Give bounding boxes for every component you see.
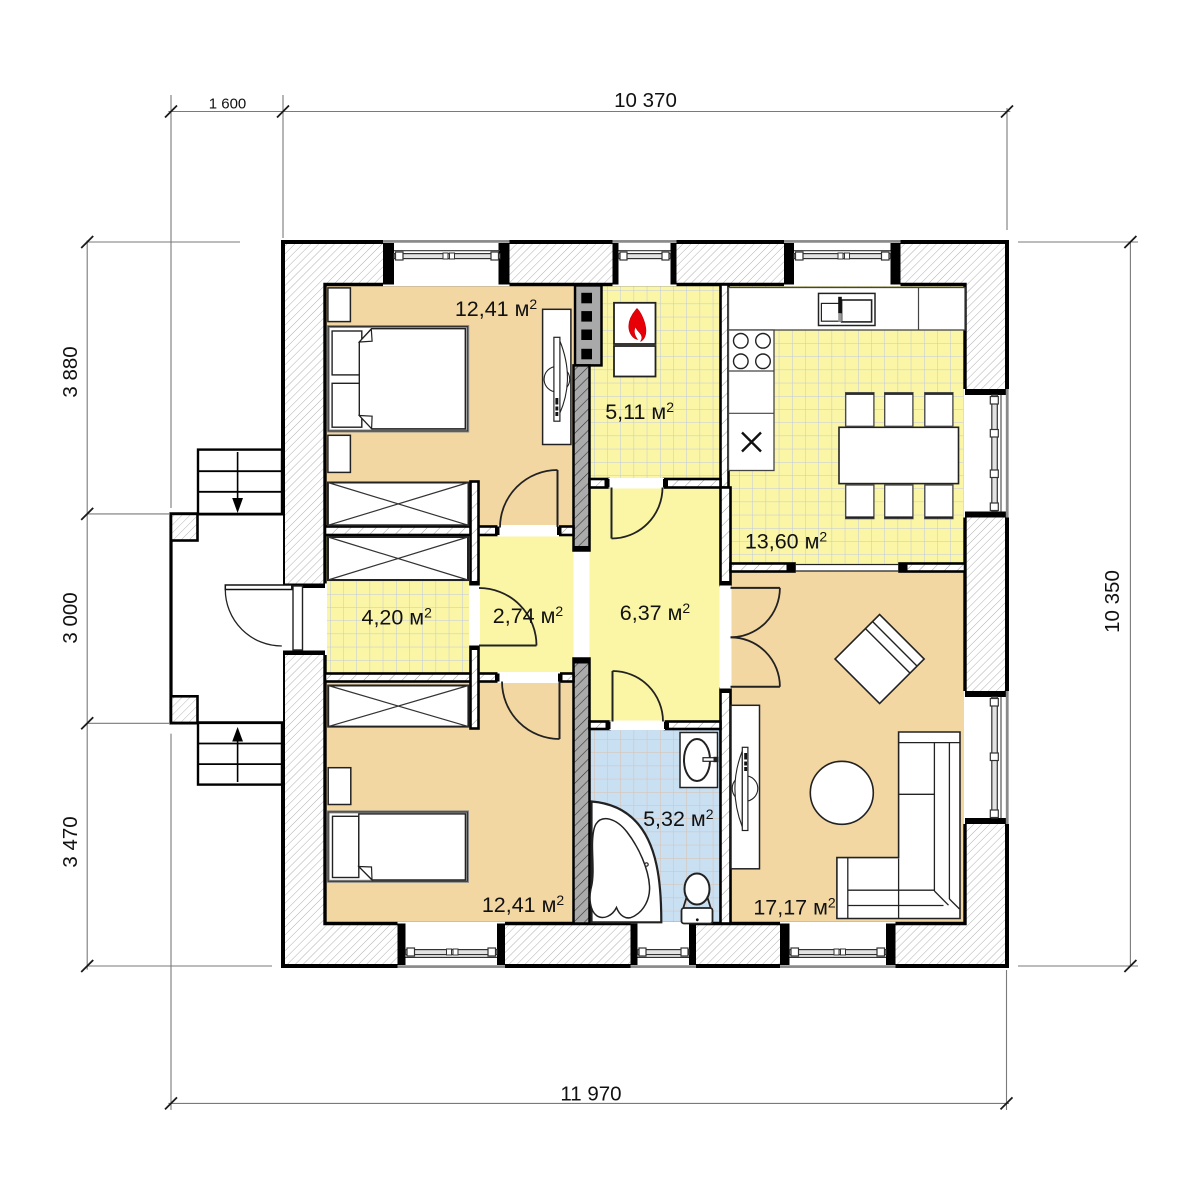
svg-text:12,41 м2: 12,41 м2 bbox=[455, 296, 538, 321]
svg-text:4,20 м2: 4,20 м2 bbox=[361, 605, 432, 630]
svg-text:12,41 м2: 12,41 м2 bbox=[482, 892, 565, 917]
svg-text:3 470: 3 470 bbox=[59, 816, 82, 867]
svg-text:10 370: 10 370 bbox=[614, 89, 677, 112]
svg-text:2,74 м2: 2,74 м2 bbox=[493, 603, 564, 628]
svg-text:11 970: 11 970 bbox=[560, 1083, 621, 1106]
svg-text:1 600: 1 600 bbox=[209, 96, 247, 113]
svg-text:6,37 м2: 6,37 м2 bbox=[620, 600, 691, 625]
svg-text:5,11 м2: 5,11 м2 bbox=[605, 399, 674, 424]
svg-text:10 350: 10 350 bbox=[1101, 570, 1124, 633]
svg-text:5,32 м2: 5,32 м2 bbox=[643, 806, 714, 831]
svg-text:13,60 м2: 13,60 м2 bbox=[745, 529, 828, 554]
svg-text:3 880: 3 880 bbox=[59, 346, 82, 397]
svg-text:17,17 м2: 17,17 м2 bbox=[753, 895, 836, 920]
svg-text:3 000: 3 000 bbox=[59, 592, 82, 643]
